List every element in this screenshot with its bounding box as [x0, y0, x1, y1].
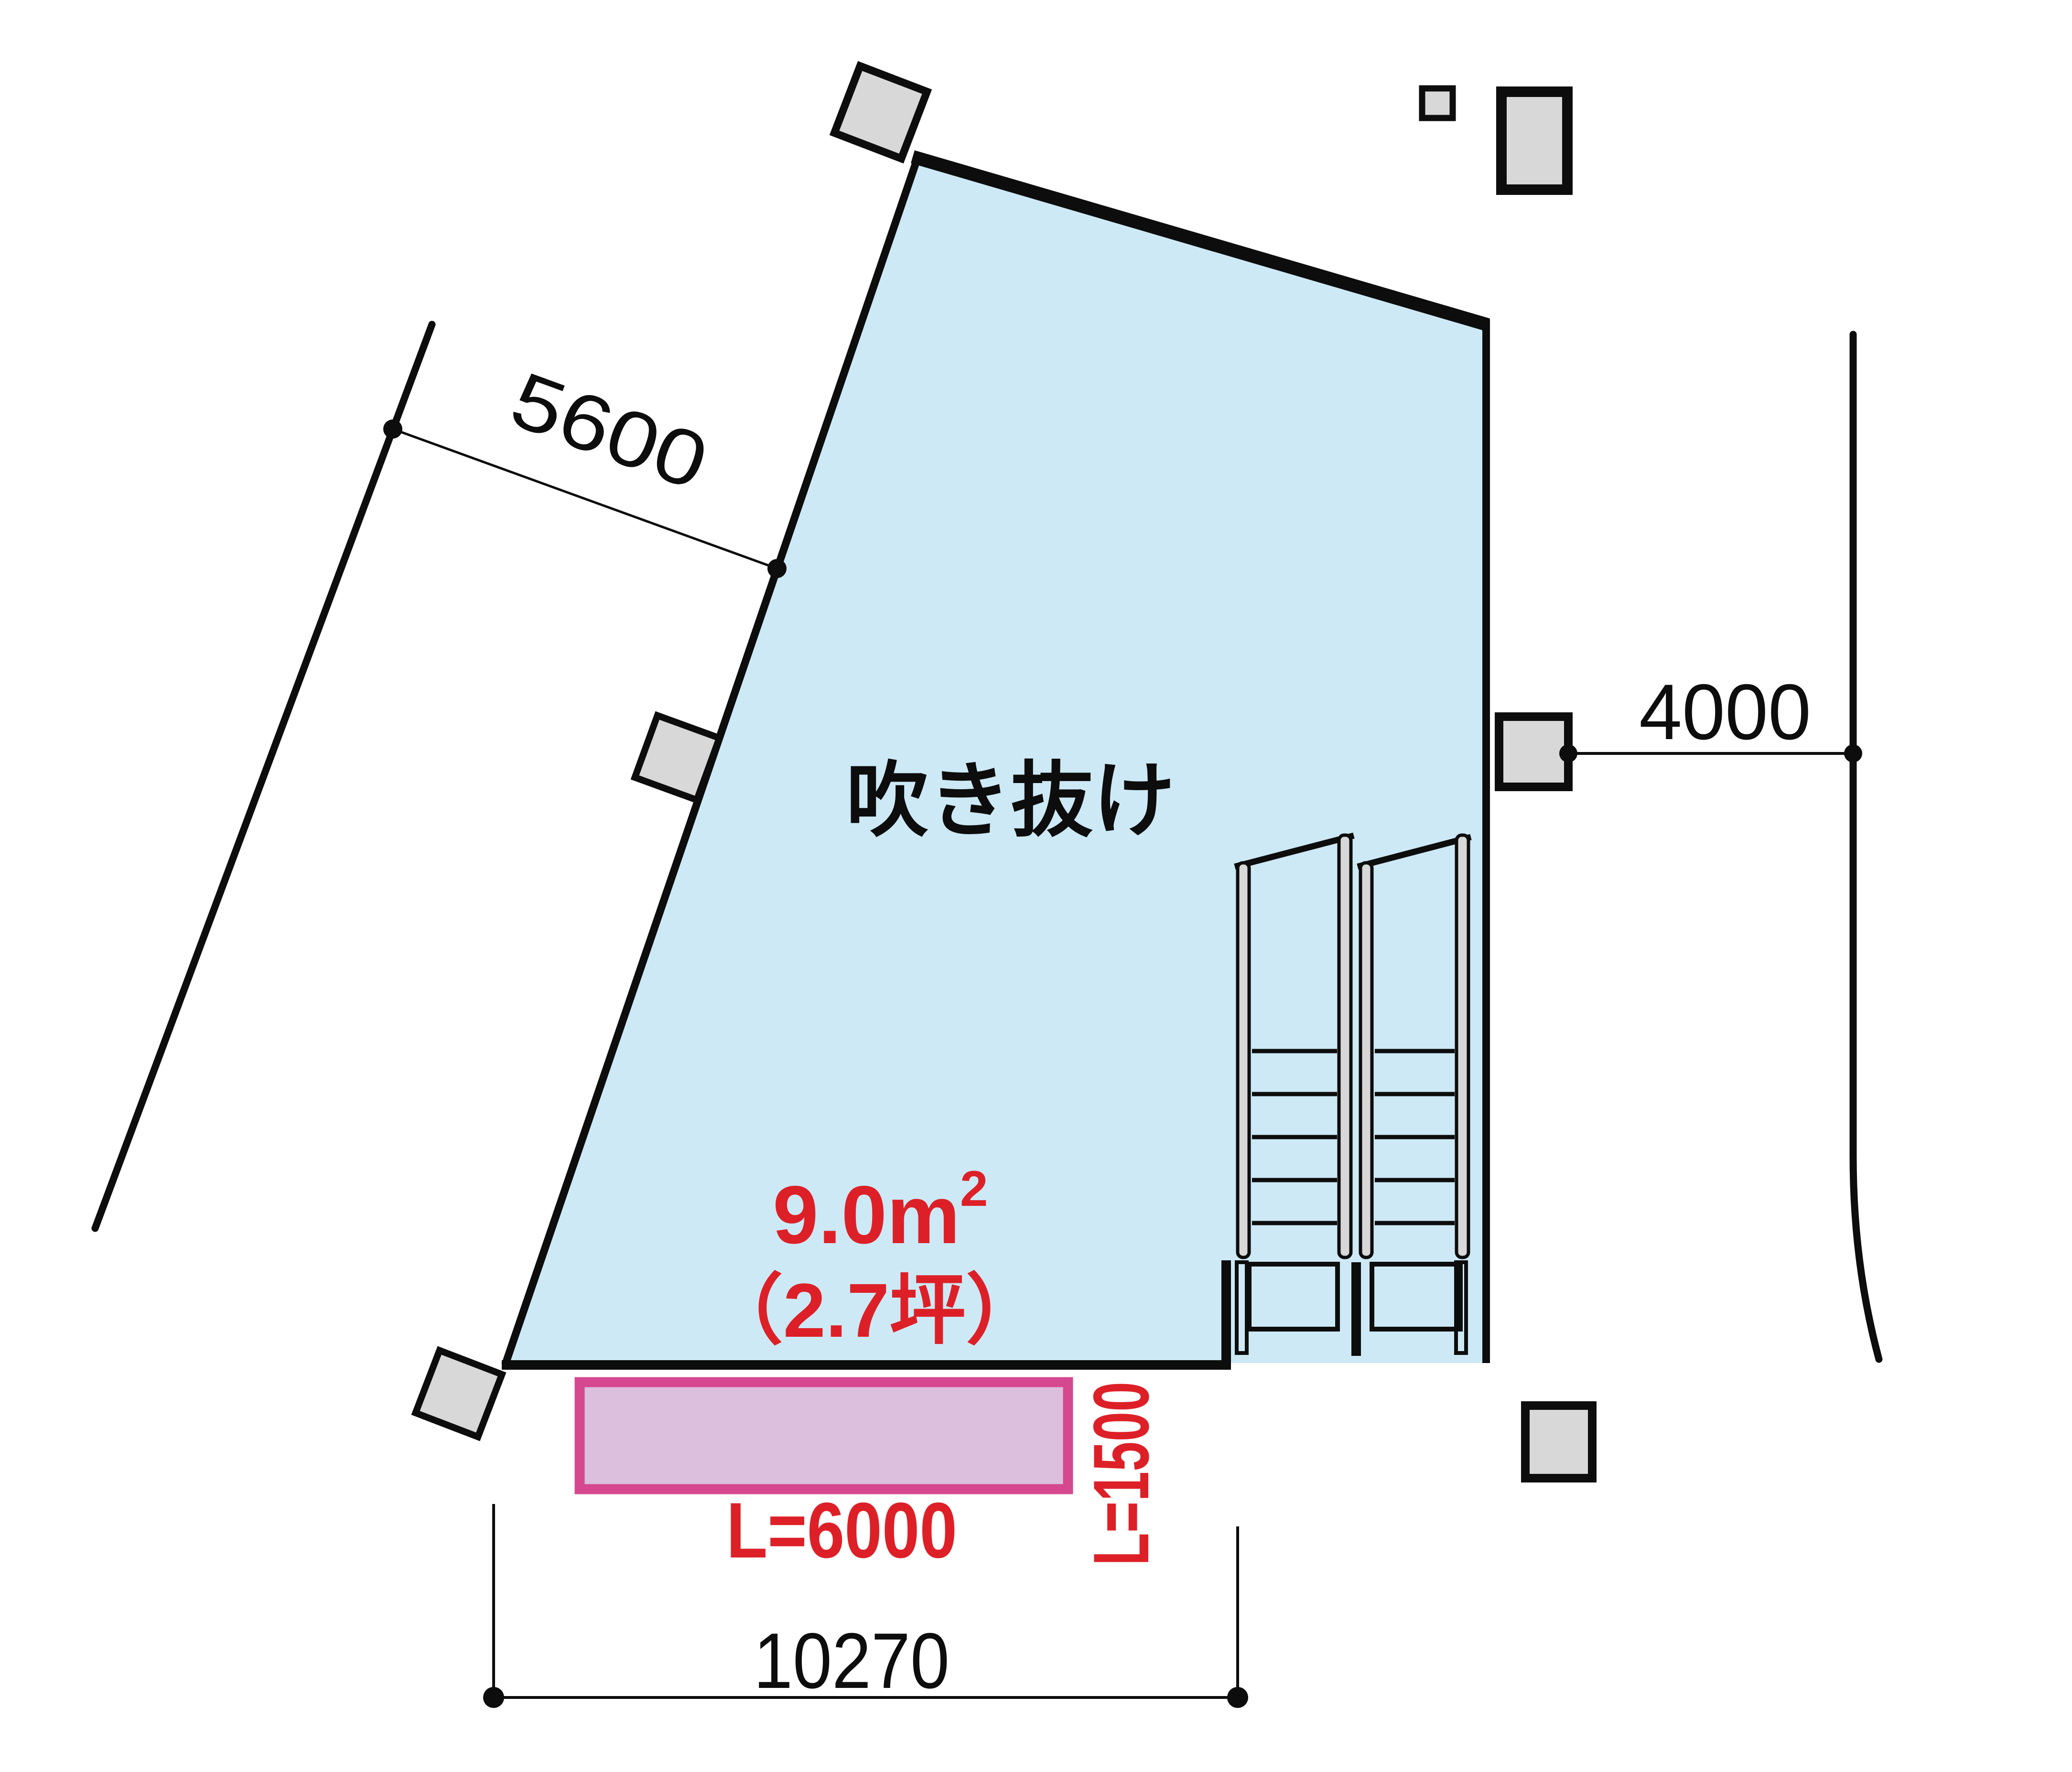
escalator-right-rail-left	[1360, 863, 1372, 1257]
escalator-left-lower-rail	[1237, 1262, 1247, 1353]
area-label-superscript: 2	[960, 1161, 988, 1217]
area-label-tsubo: （2.7坪）	[707, 1267, 1042, 1353]
dimension-5600: 5600	[383, 355, 787, 578]
column-top-apex	[834, 66, 927, 159]
louver-depth-label: L=1500	[1077, 1382, 1165, 1566]
dimension-10270-label: 10270	[754, 1617, 950, 1705]
escalator-left-rail-right	[1339, 835, 1351, 1257]
dimension-4000-dot-start	[1559, 744, 1577, 762]
dimension-4000-label: 4000	[1639, 668, 1811, 756]
room-label-void: 吹き抜け	[846, 755, 1175, 847]
floor-plan-svg: 5600 4000 10270 吹き抜け 9.0m2 （2.7坪） L=6000…	[0, 0, 2072, 1772]
escalator-left-rail-left	[1238, 863, 1249, 1257]
dimension-10270-dot-end	[1227, 1687, 1248, 1708]
louver-rect	[580, 1382, 1068, 1489]
dimension-5600-label: 5600	[500, 355, 719, 506]
dimension-5600-dot-start	[383, 419, 402, 439]
escalator-right-rail-right	[1457, 835, 1468, 1257]
dimension-4000-dot-end	[1844, 744, 1862, 762]
area-label-main: 9.0m	[773, 1169, 960, 1261]
left-road-boundary-line	[95, 324, 432, 1228]
column-bottom-left	[416, 1351, 502, 1437]
dimension-5600-dot-end	[767, 559, 787, 578]
area-label: 9.0m2	[773, 1161, 988, 1261]
louver-length-label: L=6000	[726, 1486, 957, 1574]
escalator-center-divider	[1351, 1262, 1361, 1356]
column-tiny-top-right	[1422, 88, 1453, 118]
column-right-mid	[1499, 717, 1568, 787]
column-below-stairs	[1525, 1406, 1592, 1478]
dimension-4000: 4000	[1559, 668, 1862, 762]
floor-plan-canvas: 5600 4000 10270 吹き抜け 9.0m2 （2.7坪） L=6000…	[0, 0, 2072, 1772]
column-large-top-right	[1501, 92, 1567, 190]
right-road-boundary-line	[1853, 334, 1879, 1359]
dimension-10270-dot-start	[483, 1687, 504, 1708]
